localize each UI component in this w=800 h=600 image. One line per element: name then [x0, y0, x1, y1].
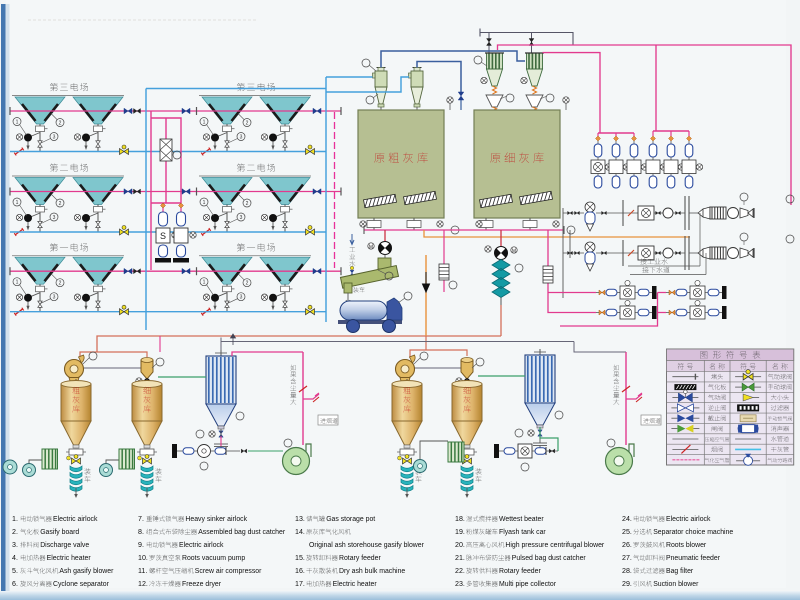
svg-text:Separator choice machine: Separator choice machine — [653, 529, 733, 536]
svg-text:2: 2 — [246, 120, 249, 126]
svg-text:12.: 12. — [138, 580, 148, 588]
svg-text:2: 2 — [246, 201, 249, 207]
svg-text:1: 1 — [203, 200, 206, 206]
svg-text:Flyash tank car: Flyash tank car — [499, 529, 546, 536]
svg-text:Discharge valve: Discharge valve — [40, 542, 89, 549]
svg-text:Gasify board: Gasify board — [40, 529, 79, 536]
svg-text:Bag filter: Bag filter — [666, 568, 694, 575]
svg-text:2: 2 — [246, 281, 249, 287]
svg-text:Multi pipe collector: Multi pipe collector — [499, 581, 557, 588]
svg-text:3: 3 — [240, 215, 243, 221]
svg-text:Roots vacuum pump: Roots vacuum pump — [182, 555, 245, 562]
svg-text:9.: 9. — [138, 541, 144, 549]
svg-text:8.: 8. — [138, 528, 144, 536]
svg-text:Assembled bag dust catcher: Assembled bag dust catcher — [198, 529, 286, 536]
svg-text:6.: 6. — [12, 580, 18, 588]
svg-text:1.: 1. — [12, 515, 18, 523]
svg-text:Electric airlock: Electric airlock — [666, 516, 711, 523]
svg-text:16.: 16. — [295, 567, 305, 575]
svg-text:Electric heater: Electric heater — [47, 555, 92, 562]
svg-text:Electric airlock: Electric airlock — [179, 542, 224, 549]
svg-text:M: M — [369, 244, 373, 250]
svg-text:3: 3 — [240, 134, 243, 140]
svg-text:17.: 17. — [295, 580, 305, 588]
svg-text:Electric airlock: Electric airlock — [53, 516, 98, 523]
svg-text:23.: 23. — [455, 580, 465, 588]
svg-text:18.: 18. — [455, 515, 465, 523]
svg-text:S: S — [160, 231, 166, 241]
svg-text:2: 2 — [59, 281, 62, 287]
svg-text:21.: 21. — [455, 554, 465, 562]
svg-text:M: M — [512, 248, 516, 254]
svg-text:24.: 24. — [622, 515, 632, 523]
svg-text:7.: 7. — [138, 515, 144, 523]
svg-text:3.: 3. — [12, 541, 18, 549]
svg-text:13.: 13. — [295, 515, 305, 523]
svg-text:28.: 28. — [622, 567, 632, 575]
svg-text:1: 1 — [203, 119, 206, 125]
svg-text:26.: 26. — [622, 541, 632, 549]
svg-text:29.: 29. — [622, 580, 632, 588]
svg-text:Gas storage pot: Gas storage pot — [326, 516, 375, 523]
svg-text:19.: 19. — [455, 528, 465, 536]
svg-text:3: 3 — [53, 134, 56, 140]
svg-text:11.: 11. — [138, 567, 147, 575]
svg-text:2: 2 — [59, 201, 62, 207]
svg-text:Wettest beater: Wettest beater — [499, 516, 544, 523]
svg-text:High pressure centrifugal blow: High pressure centrifugal blower — [505, 542, 605, 549]
svg-text:1: 1 — [203, 280, 206, 286]
svg-text:Roots blower: Roots blower — [666, 542, 707, 549]
svg-text:3: 3 — [53, 215, 56, 221]
svg-text:5.: 5. — [12, 567, 18, 575]
svg-text:3: 3 — [240, 295, 243, 301]
svg-text:20.: 20. — [455, 541, 465, 549]
svg-text:1: 1 — [16, 119, 19, 125]
svg-text:1: 1 — [16, 200, 19, 206]
svg-text:Heavy sinker airlock: Heavy sinker airlock — [185, 516, 247, 523]
svg-text:10.: 10. — [138, 554, 148, 562]
svg-text:2.: 2. — [12, 528, 18, 536]
svg-text:Original ash storehouse gasify: Original ash storehouse gasify blower — [309, 542, 425, 549]
svg-text:Pneumatic feeder: Pneumatic feeder — [666, 555, 721, 562]
svg-text:Electric heater: Electric heater — [333, 581, 378, 588]
svg-text:15.: 15. — [295, 554, 305, 562]
svg-text:Dry ash bulk machine: Dry ash bulk machine — [339, 568, 405, 575]
svg-text:Ash gasify blower: Ash gasify blower — [59, 568, 114, 575]
svg-text:22.: 22. — [455, 567, 465, 575]
svg-text:Suction blower: Suction blower — [653, 581, 699, 588]
svg-text:4.: 4. — [12, 554, 18, 562]
svg-text:Screw air compressor: Screw air compressor — [195, 568, 262, 575]
svg-text:2: 2 — [59, 120, 62, 126]
svg-text:25.: 25. — [622, 528, 632, 536]
svg-text:1: 1 — [16, 280, 19, 286]
svg-text:Pulsed bag dust catcher: Pulsed bag dust catcher — [512, 555, 587, 562]
svg-text:27.: 27. — [622, 554, 632, 562]
svg-text:14.: 14. — [295, 528, 305, 536]
svg-text:Freeze dryer: Freeze dryer — [182, 581, 222, 588]
svg-text:Rotary feeder: Rotary feeder — [499, 568, 541, 575]
svg-text:Rotary feeder: Rotary feeder — [339, 555, 381, 562]
svg-text:Cyclone separator: Cyclone separator — [53, 581, 110, 588]
svg-text:3: 3 — [53, 295, 56, 301]
